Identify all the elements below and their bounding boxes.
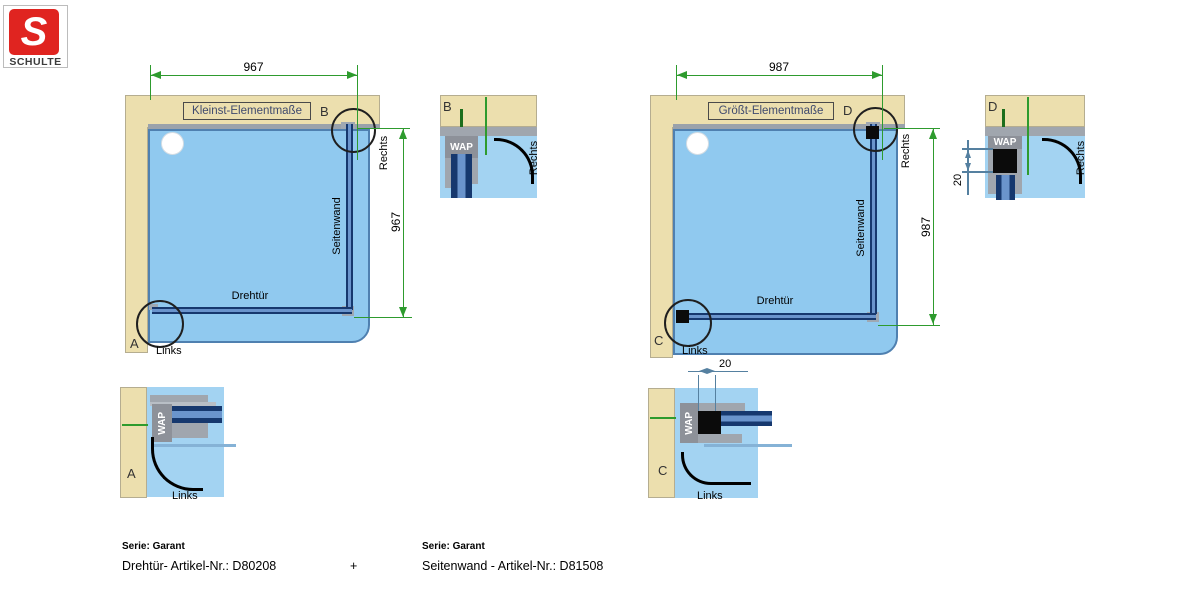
article-left: Drehtür- Artikel-Nr.: D80208 bbox=[122, 559, 276, 573]
marker-b: B bbox=[320, 104, 329, 119]
dim-ext-line bbox=[1027, 97, 1029, 175]
detail-d-rechts-label: Rechts bbox=[1075, 136, 1087, 180]
detail-c-profile-bottom bbox=[698, 434, 742, 443]
gap-dim-ext bbox=[715, 375, 716, 411]
logo-s-icon: S bbox=[9, 9, 59, 55]
schulte-logo: S SCHULTE bbox=[3, 5, 68, 68]
marker-d: D bbox=[843, 103, 852, 118]
dim-ext-line bbox=[485, 97, 487, 155]
detail-c-wap-box: WAP bbox=[680, 403, 698, 443]
detail-d-glass-section bbox=[996, 175, 1015, 200]
door-label: Drehtür bbox=[215, 290, 285, 302]
drain-icon bbox=[161, 132, 184, 155]
detail-c-glass-edge bbox=[704, 444, 792, 447]
rechts-label: Rechts bbox=[900, 129, 912, 173]
detail-a-letter: A bbox=[127, 466, 136, 481]
sidewall-label: Seitenwand bbox=[855, 192, 867, 264]
rechts-label: Rechts bbox=[378, 131, 390, 175]
detail-a-profile-top bbox=[150, 395, 208, 402]
detail-c-profile-top bbox=[697, 403, 745, 411]
detail-b-rechts-label: Rechts bbox=[528, 136, 540, 180]
links-label: Links bbox=[682, 345, 708, 357]
gap-dim-line bbox=[688, 371, 748, 372]
dim-line bbox=[676, 75, 882, 76]
links-label: Links bbox=[156, 345, 182, 357]
drawing-sheet: S SCHULTE 967 Kleinst-Elementmaße Drehtü… bbox=[0, 0, 1196, 600]
series-right: Serie: Garant bbox=[422, 541, 485, 552]
marker-a: A bbox=[130, 336, 139, 351]
dim-ext-line bbox=[882, 65, 883, 160]
dim-arrow-down-icon bbox=[929, 314, 937, 324]
gap-dim-ext bbox=[698, 375, 699, 411]
detail-c-door-section bbox=[721, 411, 772, 426]
detail-marker-a-circle bbox=[136, 300, 184, 348]
marker-c: C bbox=[654, 333, 663, 348]
gap-arrow-up-icon bbox=[965, 150, 971, 158]
dim-arrow-down-icon bbox=[399, 307, 407, 317]
gap-arrow-right-icon bbox=[707, 368, 715, 374]
sidewall-label: Seitenwand bbox=[331, 190, 343, 262]
logo-brand-name: SCHULTE bbox=[4, 56, 67, 68]
dim-line bbox=[150, 75, 357, 76]
detail-a-links-label: Links bbox=[172, 490, 198, 502]
dim-ext-stub bbox=[122, 424, 148, 426]
dim-line bbox=[403, 128, 404, 318]
dim-ext-stub bbox=[460, 109, 463, 127]
detail-marker-d-circle bbox=[853, 107, 898, 152]
gap-arrow-left-icon bbox=[699, 368, 707, 374]
dim-ext-line bbox=[357, 65, 358, 160]
detail-marker-b-circle bbox=[331, 108, 376, 153]
detail-b-glass-section bbox=[451, 154, 472, 198]
detail-b-wall-profile bbox=[440, 127, 537, 136]
diagram-title-small: Kleinst-Elementmaße bbox=[183, 102, 311, 120]
detail-d-gap-square bbox=[993, 149, 1017, 173]
dim-ext-stub bbox=[650, 417, 676, 419]
dim-height-value: 987 bbox=[919, 207, 931, 247]
diagram-title-large: Größt-Elementmaße bbox=[708, 102, 834, 120]
plus-sign: + bbox=[350, 559, 357, 573]
detail-c-wall bbox=[648, 388, 675, 498]
door-profile bbox=[152, 307, 352, 314]
detail-marker-c-circle bbox=[664, 299, 712, 347]
detail-b-wall bbox=[440, 95, 537, 127]
detail-a-door-section bbox=[172, 406, 222, 423]
dim-ext-line bbox=[878, 325, 940, 326]
detail-b-letter: B bbox=[443, 99, 452, 114]
door-label: Drehtür bbox=[740, 295, 810, 307]
wap-label: WAP bbox=[994, 137, 1017, 148]
dim-width-value: 987 bbox=[676, 60, 882, 74]
dim-line bbox=[933, 128, 934, 325]
detail-d-wall bbox=[985, 95, 1085, 127]
dim-height-value: 967 bbox=[389, 202, 401, 242]
detail-d-wall-profile bbox=[985, 127, 1085, 136]
dim-arrow-up-icon bbox=[929, 129, 937, 139]
gap-dim-value: 20 bbox=[719, 358, 731, 370]
series-left: Serie: Garant bbox=[122, 541, 185, 552]
dim-width-value: 967 bbox=[150, 60, 357, 74]
detail-d-wap-box: WAP bbox=[988, 136, 1022, 149]
detail-d-letter: D bbox=[988, 99, 997, 114]
detail-c-links-label: Links bbox=[697, 490, 723, 502]
dim-arrow-up-icon bbox=[399, 129, 407, 139]
detail-c-gap-square bbox=[698, 411, 721, 434]
detail-a-wall bbox=[120, 387, 147, 498]
sidewall-profile bbox=[870, 124, 877, 314]
article-right: Seitenwand - Artikel-Nr.: D81508 bbox=[422, 559, 603, 573]
gap-dim-value: 20 bbox=[952, 168, 964, 192]
wap-label: WAP bbox=[684, 412, 695, 435]
detail-b-profile-right bbox=[472, 158, 478, 184]
detail-c-letter: C bbox=[658, 463, 667, 478]
drain-icon bbox=[686, 132, 709, 155]
gap-arrow-down-icon bbox=[965, 163, 971, 171]
wap-label: WAP bbox=[157, 412, 168, 435]
dim-ext-stub bbox=[1002, 109, 1005, 127]
wap-label: WAP bbox=[450, 142, 473, 153]
